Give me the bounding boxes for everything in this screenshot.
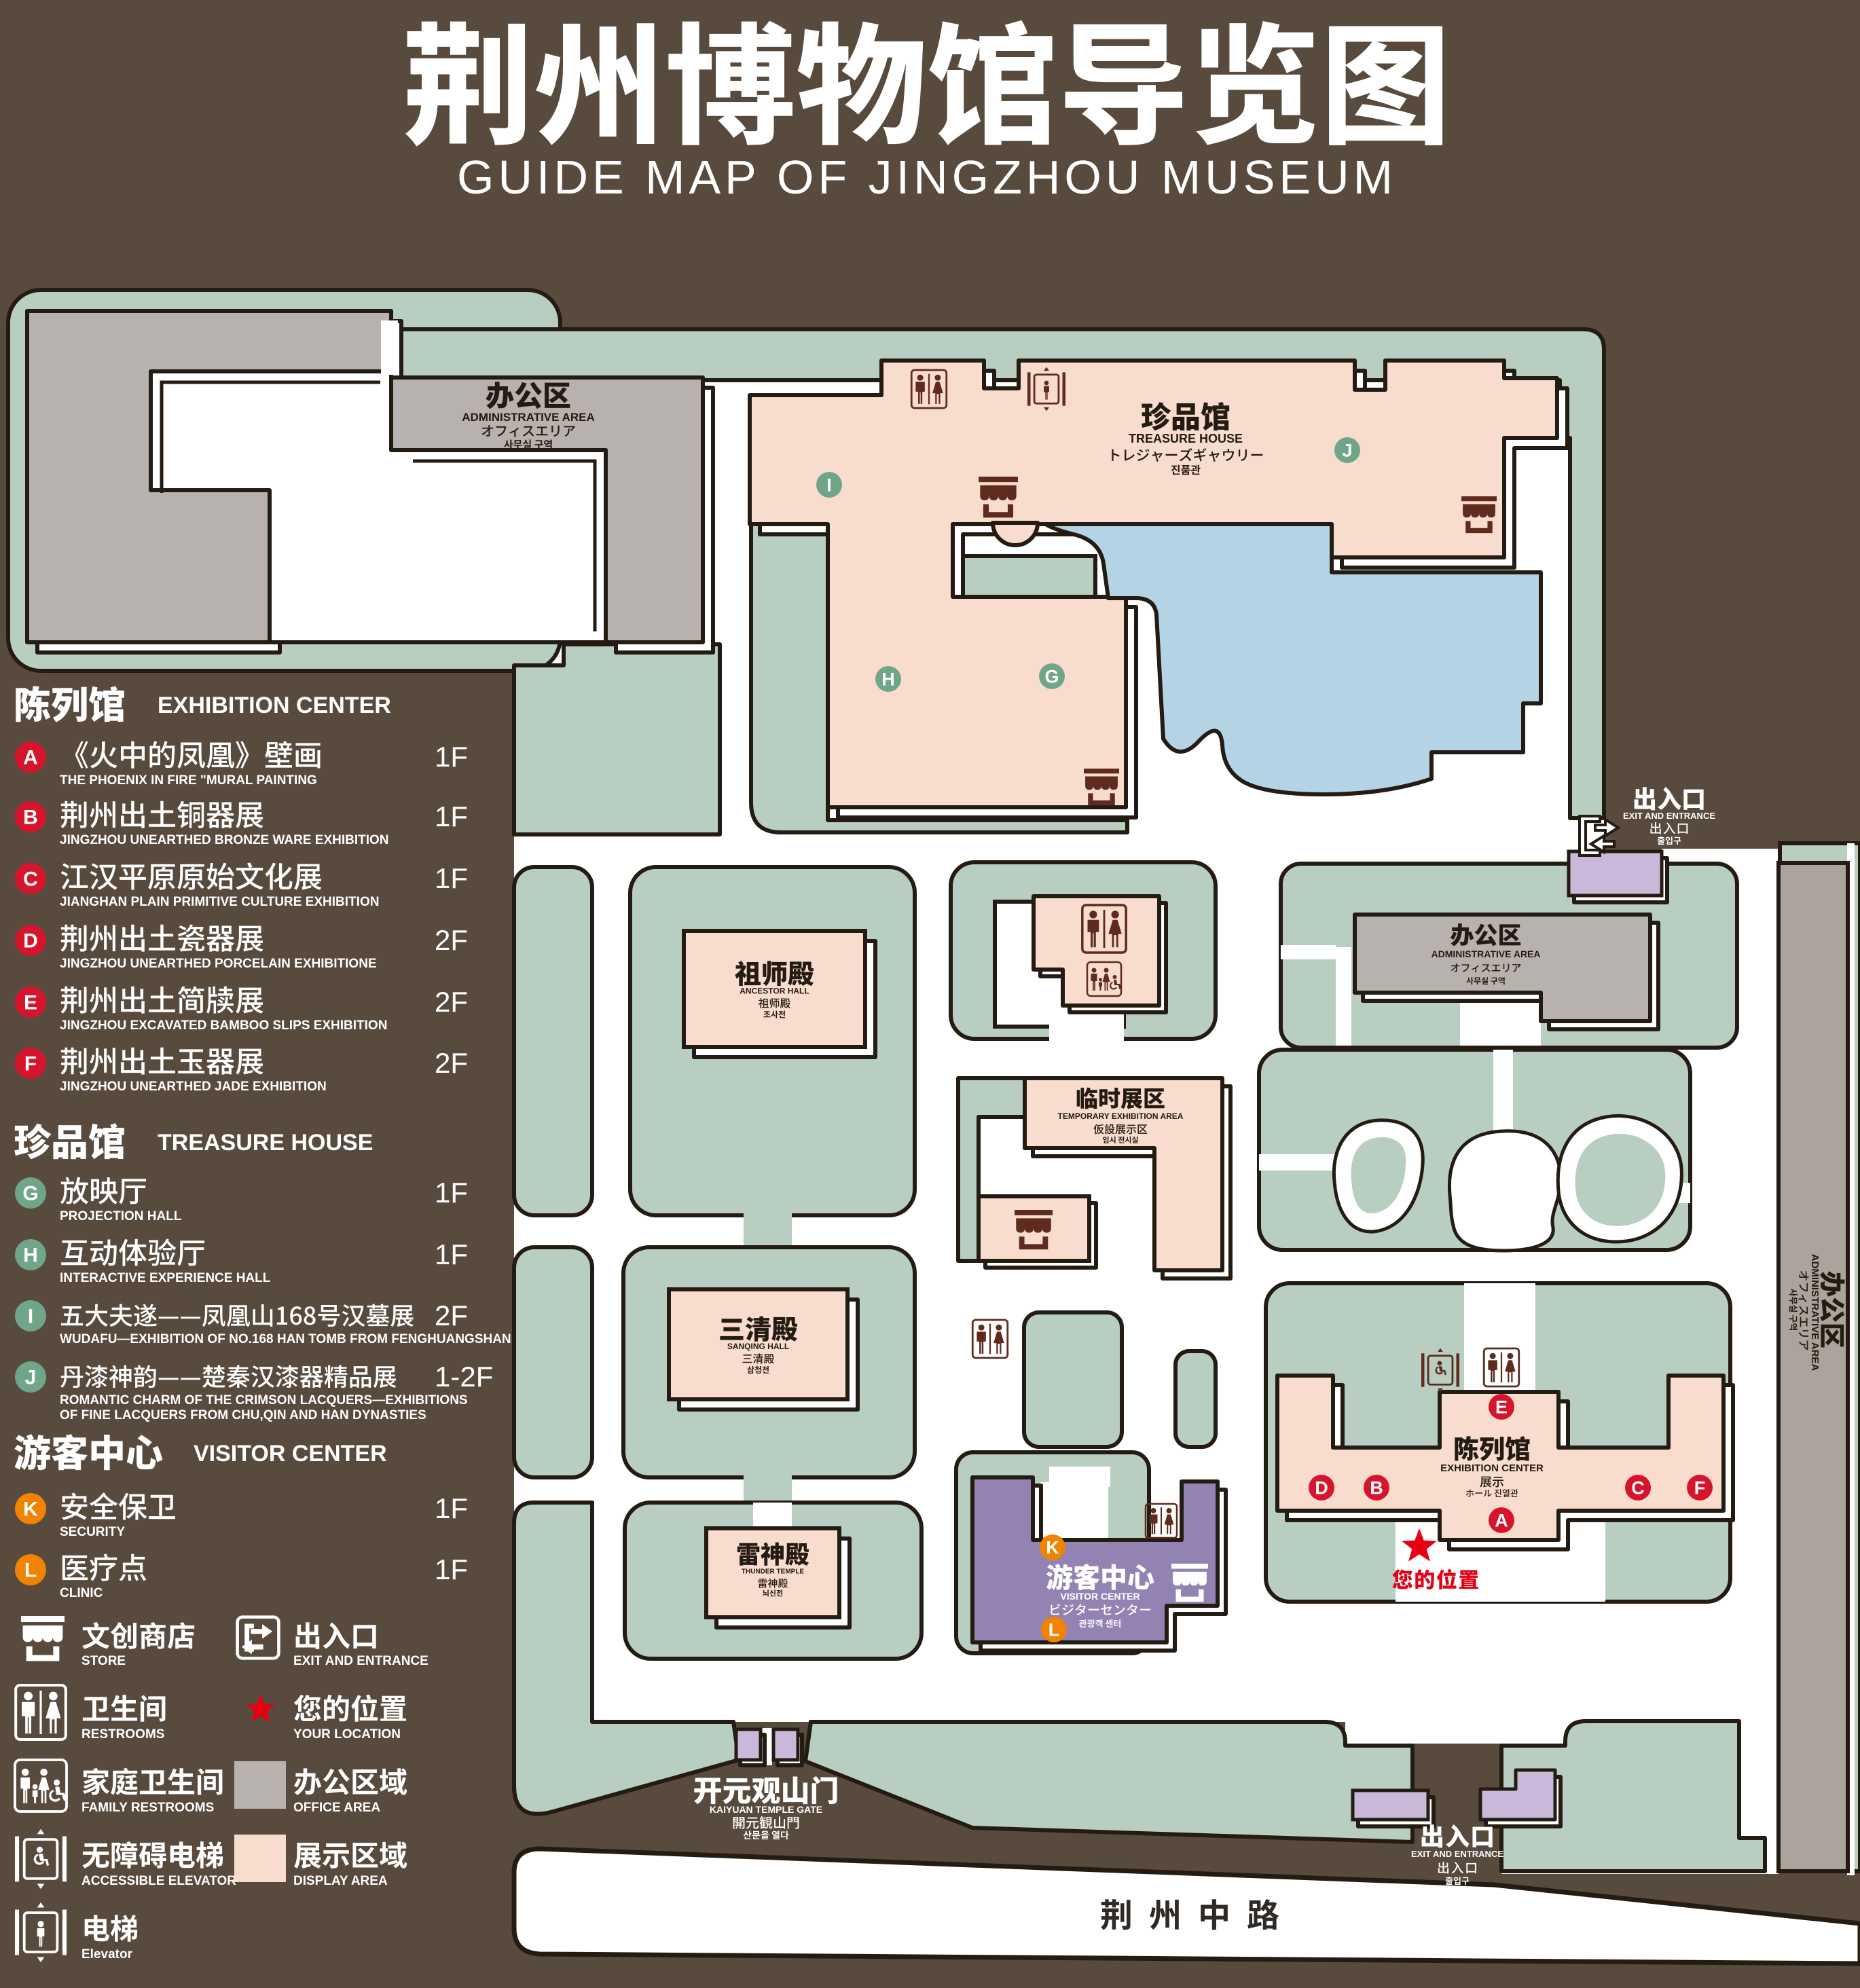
svg-text:SECURITY: SECURITY xyxy=(60,1525,125,1539)
svg-text:EXIT AND ENTRANCE: EXIT AND ENTRANCE xyxy=(1623,811,1715,821)
svg-text:OF FINE LACQUERS FROM CHU,QIN: OF FINE LACQUERS FROM CHU,QIN AND HAN DY… xyxy=(60,1408,426,1422)
svg-text:C: C xyxy=(1631,1477,1645,1498)
svg-text:INTERACTIVE EXPERIENCE HALL: INTERACTIVE EXPERIENCE HALL xyxy=(60,1271,271,1285)
svg-text:D: D xyxy=(1315,1477,1328,1498)
svg-text:2F: 2F xyxy=(435,1300,468,1331)
svg-text:2F: 2F xyxy=(435,986,468,1018)
svg-text:D: D xyxy=(23,930,38,953)
svg-text:JINGZHOU UNEARTHED JADE EXHIBI: JINGZHOU UNEARTHED JADE EXHIBITION xyxy=(60,1080,327,1094)
svg-text:K: K xyxy=(1046,1537,1059,1558)
svg-text:1F: 1F xyxy=(435,862,468,894)
svg-text:ADMINISTRATIVE AREA: ADMINISTRATIVE AREA xyxy=(1432,949,1541,959)
svg-text:JINGZHOU UNEARTHED PORCELAIN E: JINGZHOU UNEARTHED PORCELAIN EXHIBITIONE xyxy=(60,957,377,971)
svg-text:EXHIBITION CENTER: EXHIBITION CENTER xyxy=(1440,1462,1544,1474)
svg-text:SANQING HALL: SANQING HALL xyxy=(727,1342,789,1351)
svg-text:1F: 1F xyxy=(435,1553,468,1585)
svg-text:JINGZHOU UNEARTHED BRONZE WARE: JINGZHOU UNEARTHED BRONZE WARE EXHIBITIO… xyxy=(60,833,389,847)
svg-text:F: F xyxy=(24,1053,37,1075)
svg-text:1F: 1F xyxy=(435,741,468,773)
svg-text:TEMPORARY EXHIBITION AREA: TEMPORARY EXHIBITION AREA xyxy=(1058,1111,1184,1121)
svg-text:ADMINISTRATIVE AREA: ADMINISTRATIVE AREA xyxy=(1809,1254,1821,1372)
svg-text:RESTROOMS: RESTROOMS xyxy=(81,1727,164,1742)
svg-text:1F: 1F xyxy=(435,800,468,832)
svg-text:F: F xyxy=(1694,1477,1706,1498)
svg-text:I: I xyxy=(28,1306,33,1328)
svg-text:JINGZHOU EXCAVATED BAMBOO SLIP: JINGZHOU EXCAVATED BAMBOO SLIPS EXHIBITI… xyxy=(60,1018,387,1033)
svg-text:ROMANTIC CHARM OF THE CRIMSON: ROMANTIC CHARM OF THE CRIMSON LACQUERS—E… xyxy=(60,1393,468,1407)
svg-text:VISITOR CENTER: VISITOR CENTER xyxy=(194,1441,387,1467)
svg-text:JIANGHAN PLAIN PRIMITIVE CULTU: JIANGHAN PLAIN PRIMITIVE CULTURE EXHIBIT… xyxy=(60,895,379,909)
svg-text:A: A xyxy=(23,747,38,769)
svg-text:1F: 1F xyxy=(435,1492,468,1524)
svg-text:EXIT AND ENTRANCE: EXIT AND ENTRANCE xyxy=(293,1654,428,1668)
svg-text:ANCESTOR HALL: ANCESTOR HALL xyxy=(740,987,809,996)
svg-text:THUNDER TEMPLE: THUNDER TEMPLE xyxy=(742,1568,805,1576)
svg-text:TREASURE HOUSE: TREASURE HOUSE xyxy=(158,1130,373,1156)
svg-text:L: L xyxy=(1048,1619,1060,1640)
svg-text:H: H xyxy=(881,669,895,689)
svg-text:FAMILY RESTROOMS: FAMILY RESTROOMS xyxy=(81,1801,214,1815)
svg-text:A: A xyxy=(1495,1510,1508,1530)
svg-text:G: G xyxy=(22,1183,38,1205)
svg-text:H: H xyxy=(23,1245,38,1267)
svg-text:I: I xyxy=(826,475,832,495)
svg-text:J: J xyxy=(25,1367,37,1389)
svg-text:PROJECTION HALL: PROJECTION HALL xyxy=(60,1209,182,1223)
svg-text:B: B xyxy=(1370,1477,1383,1498)
svg-text:2F: 2F xyxy=(435,924,468,956)
svg-text:J: J xyxy=(1342,440,1352,460)
svg-text:G: G xyxy=(1044,666,1059,686)
svg-text:THE PHOENIX IN FIRE "MURAL PAI: THE PHOENIX IN FIRE "MURAL PAINTING xyxy=(60,773,317,788)
svg-text:EXHIBITION CENTER: EXHIBITION CENTER xyxy=(158,693,391,718)
svg-text:E: E xyxy=(24,992,37,1014)
svg-text:CLINIC: CLINIC xyxy=(60,1586,103,1600)
svg-text:2F: 2F xyxy=(435,1047,468,1079)
svg-text:1-2F: 1-2F xyxy=(435,1361,493,1393)
svg-text:1F: 1F xyxy=(435,1177,468,1209)
svg-text:DISPLAY AREA: DISPLAY AREA xyxy=(293,1874,388,1888)
svg-text:STORE: STORE xyxy=(81,1654,126,1668)
svg-text:Elevator: Elevator xyxy=(81,1947,133,1962)
svg-text:1F: 1F xyxy=(435,1238,468,1270)
svg-text:C: C xyxy=(23,868,38,891)
svg-text:ADMINISTRATIVE AREA: ADMINISTRATIVE AREA xyxy=(462,411,595,424)
svg-text:B: B xyxy=(23,807,38,829)
svg-text:TREASURE HOUSE: TREASURE HOUSE xyxy=(1129,432,1243,445)
svg-text:GUIDE MAP OF JINGZHOU MUSEUM: GUIDE MAP OF JINGZHOU MUSEUM xyxy=(457,151,1397,204)
svg-text:OFFICE AREA: OFFICE AREA xyxy=(293,1801,380,1815)
svg-text:EXIT AND ENTRANCE: EXIT AND ENTRANCE xyxy=(1411,1849,1503,1859)
svg-text:E: E xyxy=(1495,1397,1508,1417)
svg-text:VISITOR CENTER: VISITOR CENTER xyxy=(1060,1591,1139,1602)
svg-text:WUDAFU—EXHIBITION OF NO.168 HA: WUDAFU—EXHIBITION OF NO.168 HAN TOMB FRO… xyxy=(60,1332,511,1346)
svg-text:KAIYUAN TEMPLE GATE: KAIYUAN TEMPLE GATE xyxy=(710,1804,822,1815)
svg-text:YOUR LOCATION: YOUR LOCATION xyxy=(293,1727,401,1742)
svg-text:L: L xyxy=(24,1560,37,1582)
svg-text:ACCESSIBLE ELEVATOR: ACCESSIBLE ELEVATOR xyxy=(81,1874,236,1888)
svg-text:K: K xyxy=(23,1498,38,1521)
